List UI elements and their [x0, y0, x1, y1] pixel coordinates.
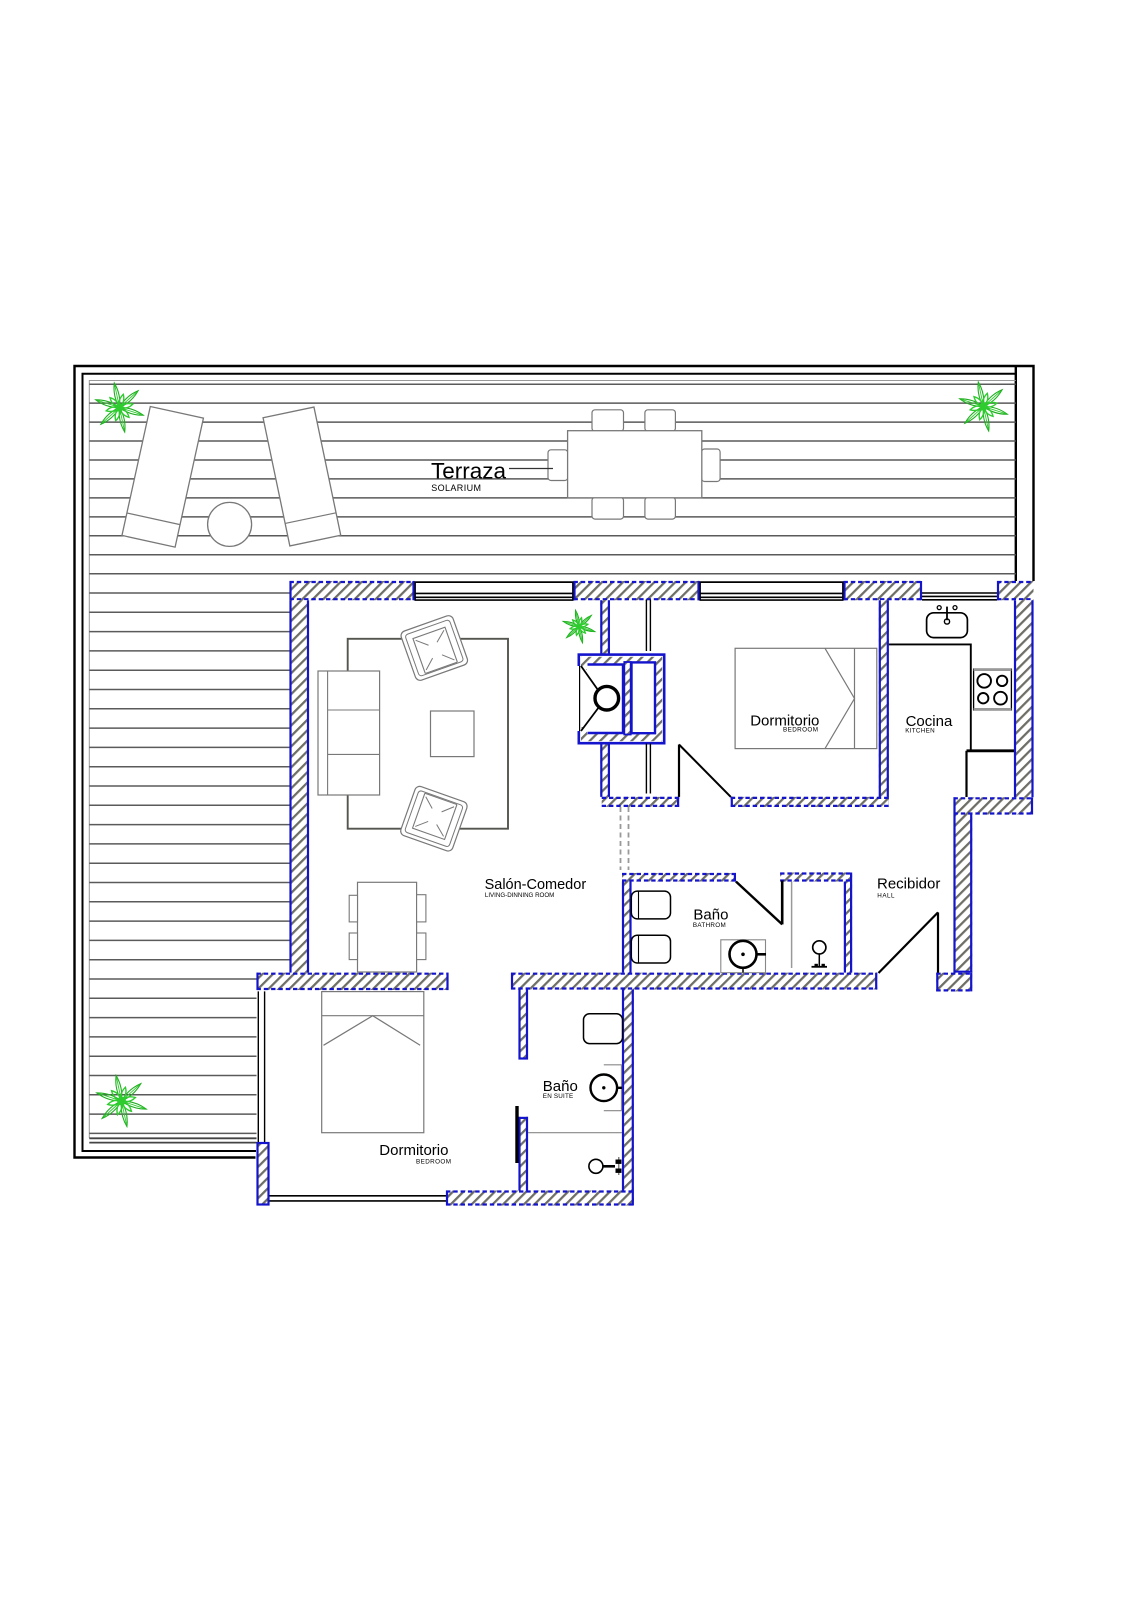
- svg-text:Salón-Comedor: Salón-Comedor: [485, 877, 587, 893]
- svg-text:KITCHEN: KITCHEN: [905, 728, 935, 735]
- svg-text:HALL: HALL: [877, 892, 895, 899]
- svg-text:Dormitorio: Dormitorio: [379, 1142, 448, 1159]
- svg-text:EN SUITE: EN SUITE: [543, 1093, 574, 1100]
- svg-text:Recibidor: Recibidor: [877, 876, 940, 893]
- svg-text:BEDROOM: BEDROOM: [416, 1158, 451, 1165]
- svg-text:SOLARIUM: SOLARIUM: [431, 483, 481, 493]
- svg-text:BATHROM: BATHROM: [693, 922, 726, 929]
- svg-text:BEDROOM: BEDROOM: [783, 727, 818, 734]
- svg-text:Terraza: Terraza: [431, 459, 507, 484]
- svg-text:Baño: Baño: [693, 907, 728, 924]
- svg-text:LIVING-DINNING ROOM: LIVING-DINNING ROOM: [485, 892, 554, 899]
